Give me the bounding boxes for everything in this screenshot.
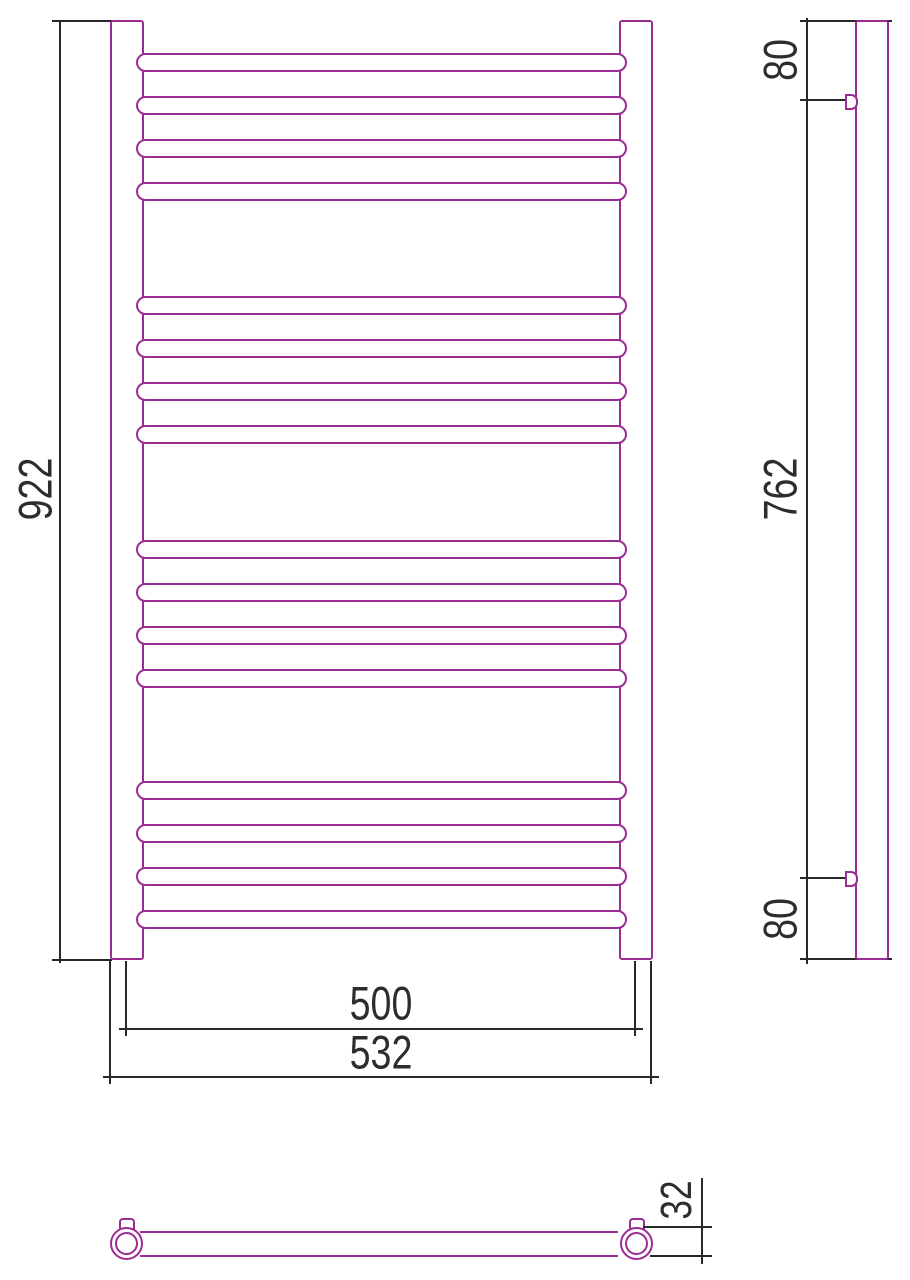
bottom-view: 32 xyxy=(0,0,910,1280)
rail-cross-section-left xyxy=(110,1227,143,1260)
dim-line-diameter xyxy=(701,1178,703,1264)
rail-cross-section-right xyxy=(620,1227,653,1260)
rail-inner-circle xyxy=(625,1232,648,1255)
rail-inner-circle xyxy=(115,1232,138,1255)
dim-tube-diameter-label: 32 xyxy=(655,1180,699,1219)
drawing-canvas: 922 500 532 80 762 80 xyxy=(0,0,910,1280)
bottom-rung-tube xyxy=(140,1231,618,1257)
